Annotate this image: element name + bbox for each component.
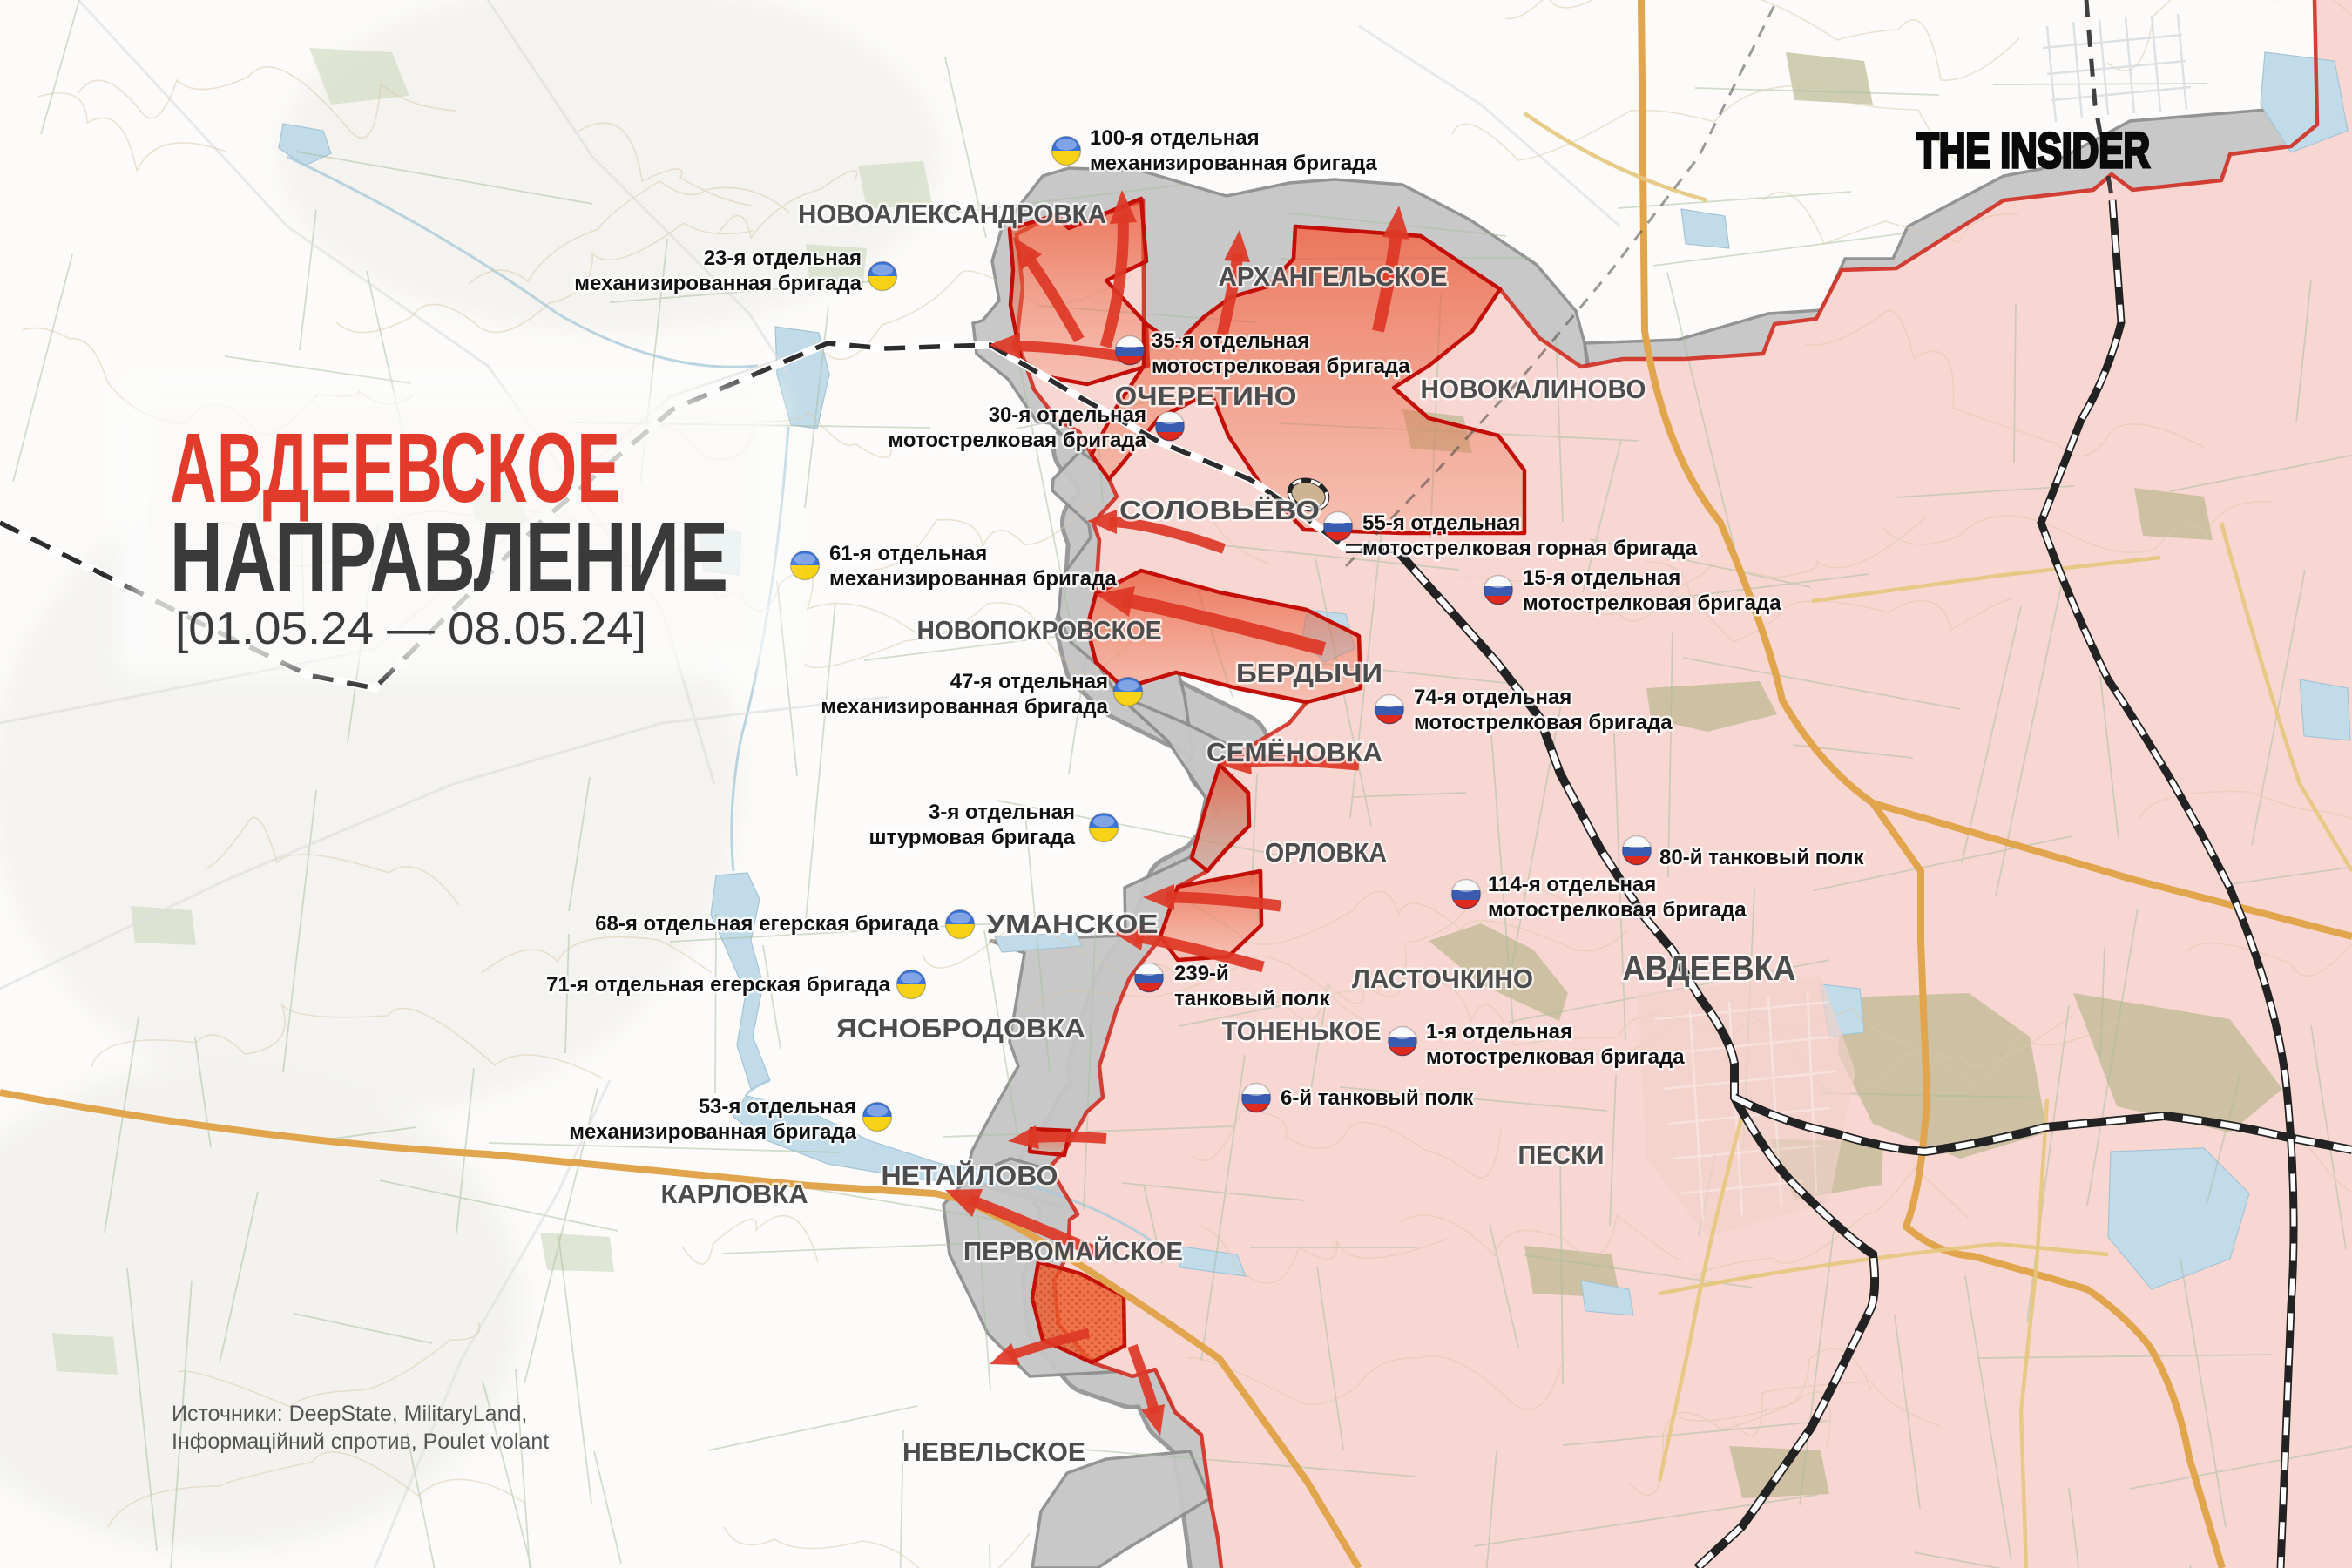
svg-text:ПЕСКИ: ПЕСКИ [1518, 1139, 1605, 1170]
svg-text:53-я отдельная: 53-я отдельная [699, 1095, 856, 1119]
svg-text:ЯСНОБРОДОВКА: ЯСНОБРОДОВКА [836, 1013, 1085, 1044]
svg-text:68-я отдельная егерская бригад: 68-я отдельная егерская бригада [595, 912, 940, 936]
svg-text:[01.05.24 — 08.05.24]: [01.05.24 — 08.05.24] [175, 604, 646, 654]
svg-text:мотострелковая горная бригада: мотострелковая горная бригада [1362, 537, 1698, 560]
svg-text:танковый полк: танковый полк [1174, 987, 1330, 1010]
svg-text:74-я отдельная: 74-я отдельная [1414, 686, 1571, 709]
svg-text:3-я отдельная: 3-я отдельная [929, 801, 1075, 824]
svg-text:мотострелковая бригада: мотострелковая бригада [888, 429, 1146, 452]
svg-text:мотострелковая бригада: мотострелковая бригада [1523, 591, 1781, 615]
svg-text:100-я отдельная: 100-я отдельная [1090, 126, 1260, 150]
svg-text:61-я отдельная: 61-я отдельная [829, 542, 987, 565]
svg-text:71-я отдельная егерская бригад: 71-я отдельная егерская бригада [546, 973, 891, 997]
svg-text:ПЕРВОМАЙСКОЕ: ПЕРВОМАЙСКОЕ [963, 1235, 1183, 1267]
svg-text:механизированная бригада: механизированная бригада [569, 1120, 856, 1144]
svg-text:мотострелковая бригада: мотострелковая бригада [1414, 711, 1673, 734]
svg-text:штурмовая бригада: штурмовая бригада [869, 826, 1076, 849]
svg-text:ОРЛОВКА: ОРЛОВКА [1265, 837, 1387, 868]
svg-text:47-я отдельная: 47-я отдельная [950, 670, 1108, 693]
svg-text:механизированная бригада: механизированная бригада [829, 567, 1117, 591]
svg-text:80-й танковый полк: 80-й танковый полк [1659, 846, 1865, 869]
svg-text:6-й танковый полк: 6-й танковый полк [1281, 1086, 1474, 1110]
svg-text:НОВОКАЛИНОВО: НОВОКАЛИНОВО [1421, 374, 1646, 404]
svg-text:30-я отдельная: 30-я отдельная [989, 403, 1146, 427]
svg-text:механизированная бригада: механизированная бригада [821, 695, 1108, 719]
svg-text:БЕРДЫЧИ: БЕРДЫЧИ [1236, 658, 1382, 688]
svg-text:УМАНСКОЕ: УМАНСКОЕ [987, 909, 1159, 939]
svg-text:НЕВЕЛЬСКОЕ: НЕВЕЛЬСКОЕ [902, 1436, 1085, 1467]
svg-text:механизированная бригада: механизированная бригада [574, 272, 862, 295]
svg-text:мотострелковая бригада: мотострелковая бригада [1426, 1045, 1685, 1069]
svg-text:СЕМЁНОВКА: СЕМЁНОВКА [1206, 737, 1382, 767]
svg-text:механизированная бригада: механизированная бригада [1090, 152, 1377, 175]
svg-text:мотострелковая бригада: мотострелковая бригада [1488, 898, 1747, 922]
svg-text:Источники: DeepState, Military: Источники: DeepState, MilitaryLand, [172, 1402, 527, 1426]
svg-text:Інформаційний спротив, Poulet: Інформаційний спротив, Poulet volant [172, 1429, 549, 1454]
svg-text:239-й: 239-й [1174, 962, 1229, 985]
svg-text:НАПРАВЛЕНИЕ: НАПРАВЛЕНИЕ [170, 502, 728, 612]
svg-text:23-я отдельная: 23-я отдельная [704, 247, 862, 270]
svg-text:КАРЛОВКА: КАРЛОВКА [661, 1179, 808, 1209]
svg-text:1-я отдельная: 1-я отдельная [1426, 1020, 1572, 1044]
svg-text:ТОНЕНЬКОЕ: ТОНЕНЬКОЕ [1222, 1016, 1382, 1046]
svg-text:35-я отдельная: 35-я отдельная [1152, 329, 1309, 353]
svg-text:АРХАНГЕЛЬСКОЕ: АРХАНГЕЛЬСКОЕ [1219, 261, 1448, 292]
svg-text:ЛАСТОЧКИНО: ЛАСТОЧКИНО [1352, 963, 1533, 994]
svg-text:НОВОПОКРОВСКОЕ: НОВОПОКРОВСКОЕ [917, 615, 1162, 645]
svg-text:НЕТАЙЛОВО: НЕТАЙЛОВО [882, 1159, 1058, 1191]
svg-text:15-я отдельная: 15-я отдельная [1523, 566, 1680, 590]
svg-text:114-я отдельная: 114-я отдельная [1488, 873, 1656, 896]
svg-text:мотострелковая бригада: мотострелковая бригада [1152, 355, 1410, 378]
svg-text:55-я отдельная: 55-я отдельная [1362, 511, 1520, 535]
svg-text:АВДЕЕВКА: АВДЕЕВКА [1623, 950, 1796, 988]
svg-text:THE INSIDER: THE INSIDER [1916, 123, 2150, 179]
svg-text:СОЛОВЬЁВО: СОЛОВЬЁВО [1119, 495, 1320, 525]
svg-text:НОВОАЛЕКСАНДРОВКА: НОВОАЛЕКСАНДРОВКА [798, 199, 1106, 229]
